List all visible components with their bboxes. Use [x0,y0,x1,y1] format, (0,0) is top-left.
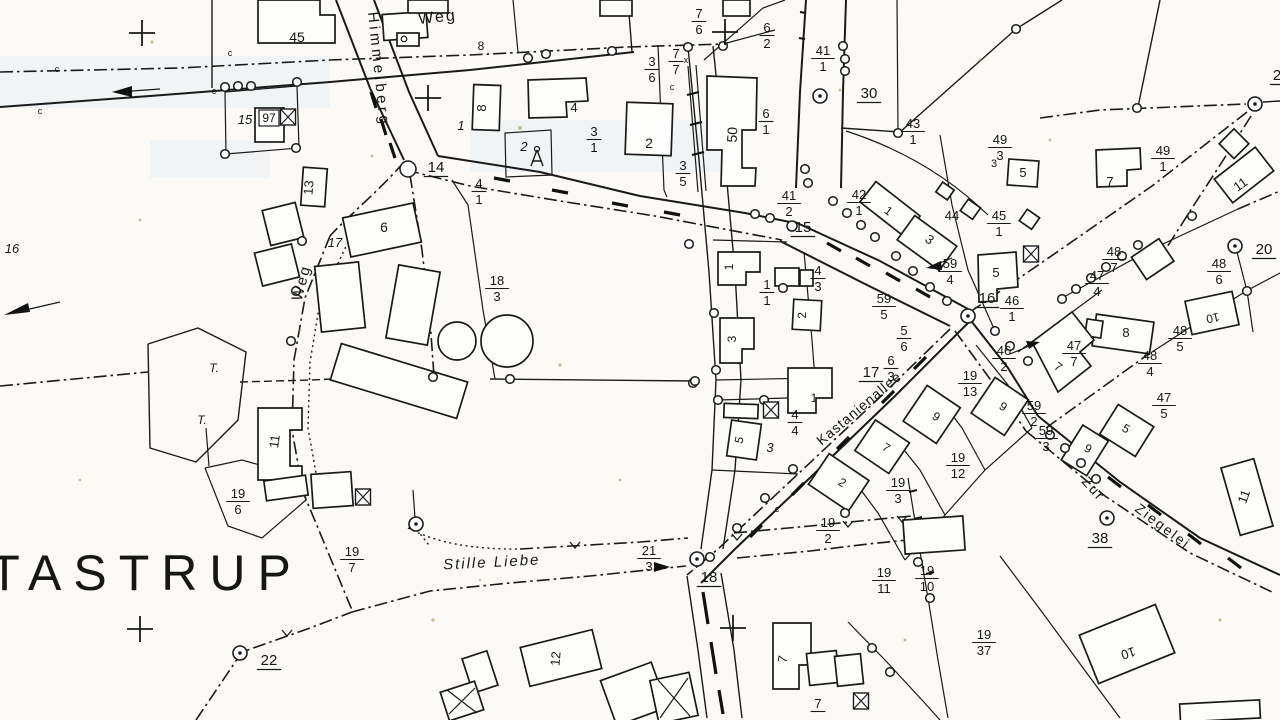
svg-text:43: 43 [906,116,920,131]
boundary-point-icon [1061,444,1070,453]
boundary-point-icon [926,594,935,603]
label-house: 5 [1019,165,1026,180]
svg-text:49: 49 [993,132,1007,147]
label-house: 2 [795,311,809,319]
svg-text:59: 59 [1027,398,1041,413]
label-parcel: 485 [1168,323,1192,354]
boundary-point-icon [221,83,230,92]
cadastral-map-canvas: TASTRUPWegHimmelbergWegStille LiebeKasta… [0,0,1280,720]
svg-text:3: 3 [590,124,597,139]
svg-text:18: 18 [701,569,718,586]
boundary-point-icon [524,54,533,63]
label-house: 50 [724,126,741,143]
label-parcel: 593 [1034,423,1058,454]
svg-text:45: 45 [992,208,1006,223]
label-block: 15 [791,219,815,237]
svg-text:c: c [212,86,217,96]
survey-point-icon [813,89,827,103]
svg-text:38: 38 [1092,530,1109,547]
label-parcel: 7 [811,696,826,712]
boundary-point-icon [714,396,723,405]
svg-text:1: 1 [763,293,770,308]
svg-text:47: 47 [1067,338,1081,353]
label-note: T. [209,361,219,375]
boundary-point-icon [706,553,715,562]
svg-text:59: 59 [943,256,957,271]
svg-text:19: 19 [977,627,991,642]
survey-point-icon [1228,239,1242,253]
svg-text:c: c [55,64,60,74]
label-parcel: 491 [1151,143,1175,174]
boundary-point-icon [1024,357,1033,366]
boundary-point-icon [751,210,760,219]
label-parcel: 1912 [946,450,970,481]
boundary-point-icon [909,267,918,276]
svg-text:50: 50 [724,126,741,143]
svg-text:1: 1 [762,122,769,137]
svg-text:19: 19 [920,563,934,578]
svg-text:2: 2 [824,531,831,546]
svg-text:19: 19 [345,544,359,559]
label-parcel: 192 [816,515,840,546]
svg-text:20: 20 [1256,241,1273,258]
svg-text:3: 3 [493,289,500,304]
svg-text:3: 3 [766,440,774,455]
label-house: 5 [992,265,999,280]
svg-text:4: 4 [570,100,577,115]
crossed-square-icon [281,109,296,125]
svg-text:2: 2 [1030,414,1037,429]
label-block: 30 [857,85,881,103]
boundary-point-icon [234,82,243,91]
svg-text:48: 48 [1173,323,1187,338]
boundary-point-icon [1058,295,1067,304]
svg-text:T.: T. [197,413,207,427]
svg-text:TASTRUP: TASTRUP [0,545,303,601]
svg-text:4: 4 [791,407,798,422]
label-house: 8 [474,104,489,111]
svg-text:22: 22 [261,652,278,669]
boundary-point-icon [608,47,617,56]
grid-cross-icon [127,616,153,642]
svg-text:7: 7 [1106,174,1113,189]
svg-text:11: 11 [266,434,283,449]
svg-text:97: 97 [262,111,276,125]
label-house: 1 [722,263,736,270]
label-parcel: 76 [692,6,707,37]
svg-text:44: 44 [945,208,959,223]
label-parcel: 412 [777,188,801,219]
boundary-point-icon [886,668,895,677]
svg-text:37: 37 [977,643,991,658]
svg-text:c: c [228,48,233,58]
label-house: 13 [300,180,316,196]
svg-text:42: 42 [852,187,866,202]
svg-text:59: 59 [1039,423,1053,438]
label-note: x [684,55,689,65]
label-house: 8 [1122,325,1129,340]
label-house: 8 [478,39,485,53]
crossed-square-icon [356,489,371,505]
label-parcel: 451 [987,208,1011,239]
svg-text:c: c [775,504,780,514]
svg-text:48: 48 [1212,256,1226,271]
svg-text:18: 18 [490,273,504,288]
svg-text:10: 10 [920,579,934,594]
label-parcel: 595 [872,291,896,322]
boundary-point-icon [829,197,838,206]
survey-point-icon [690,552,704,566]
boundary-point-icon [1243,287,1252,296]
svg-text:12: 12 [951,466,965,481]
svg-text:6: 6 [900,339,907,354]
svg-text:49: 49 [1156,143,1170,158]
label-street: Weg [417,7,457,28]
svg-text:1: 1 [1008,309,1015,324]
label-block: 18 [697,569,721,587]
svg-text:16: 16 [5,241,20,256]
label-house: 1 [811,391,818,405]
label-parcel: 431 [901,116,925,147]
svg-text:47: 47 [1090,268,1104,283]
boundary-point-icon [779,284,788,293]
boundary-point-icon [1188,212,1197,221]
svg-text:6: 6 [1215,272,1222,287]
svg-text:2: 2 [519,139,528,154]
svg-text:59: 59 [877,291,891,306]
label-house: 45 [289,29,305,45]
label-note: c [670,82,675,92]
boundary-point-icon [1134,241,1143,250]
svg-text:3: 3 [894,491,901,506]
svg-text:21: 21 [642,543,656,558]
boundary-point-icon [841,55,850,64]
svg-text:6: 6 [380,219,388,235]
boundary-point-icon [857,221,866,230]
label-block: 2 [1270,67,1280,85]
label-parcel: 411 [811,43,835,74]
svg-text:T.: T. [209,361,219,375]
label-house: 1 [457,118,464,133]
label-house: 16 [5,241,20,256]
label-house: 17 [328,235,343,250]
label-note: c [228,48,233,58]
label-parcel: 36 [645,54,660,85]
svg-text:1: 1 [590,140,597,155]
svg-text:4: 4 [475,176,482,191]
svg-text:1: 1 [722,263,736,270]
boundary-point-icon [801,165,810,174]
svg-text:1: 1 [855,203,862,218]
svg-text:7: 7 [672,46,679,61]
label-house: 12 [547,651,563,667]
svg-text:5: 5 [1160,406,1167,421]
boundary-point-icon [871,233,880,242]
label-house: 3 [725,335,739,342]
label-house: 15 [238,112,253,127]
survey-point-icon [1100,511,1114,525]
boundary-point-icon [868,644,877,653]
label-parcel: 197 [340,544,364,575]
svg-text:4: 4 [814,263,821,278]
boundary-point-icon [712,366,721,375]
label-parcel: 77 [669,46,684,77]
boundary-point-icon [926,283,935,292]
svg-text:7: 7 [814,696,821,711]
label-parcel: 474 [1085,268,1109,299]
scanned-cadastral-map: TASTRUPWegHimmelbergWegStille LiebeKasta… [0,0,1280,720]
svg-text:2: 2 [763,36,770,51]
svg-text:12: 12 [547,651,563,667]
svg-text:1: 1 [475,192,482,207]
boundary-point-icon [843,209,852,218]
label-parcel: 475 [1152,390,1176,421]
svg-text:1: 1 [1159,159,1166,174]
boundary-point-icon [766,214,775,223]
svg-text:30: 30 [861,85,878,102]
label-house: 2 [645,135,653,151]
boundary-point-icon [685,240,694,249]
label-parcel: 486 [1207,256,1231,287]
label-block: 14 [424,159,448,177]
boundary-point-icon [691,377,700,386]
boundary-point-icon [943,297,952,306]
svg-text:8: 8 [474,104,489,111]
label-house: 11 [266,434,283,449]
label-parcel: 1913 [958,368,982,399]
label-parcel: 41 [472,176,487,207]
svg-text:19: 19 [821,515,835,530]
svg-text:6: 6 [234,502,241,517]
svg-text:45: 45 [289,29,305,45]
boundary-point-icon [1072,285,1081,294]
label-street: Stille Liebe [443,551,541,573]
svg-text:19: 19 [231,486,245,501]
label-parcel: 56 [897,323,912,354]
svg-text:4: 4 [946,272,953,287]
svg-text:4: 4 [791,423,798,438]
label-place: TASTRUP [0,545,303,601]
svg-text:6: 6 [695,22,702,37]
svg-text:15: 15 [795,219,812,236]
svg-text:3: 3 [991,158,997,170]
label-block: 17 [859,364,883,382]
svg-text:19: 19 [877,565,891,580]
svg-text:6: 6 [763,20,770,35]
svg-text:6: 6 [887,353,894,368]
label-parcel: 461 [1000,293,1024,324]
boundary-point-icon [293,78,302,87]
label-house: 4 [570,100,577,115]
svg-text:6: 6 [762,106,769,121]
svg-text:3: 3 [648,54,655,69]
boundary-point-icon [684,43,693,52]
svg-text:1: 1 [763,277,770,292]
survey-point-icon [961,309,975,323]
svg-text:3: 3 [725,335,739,342]
svg-text:3: 3 [996,148,1003,163]
svg-text:1: 1 [819,59,826,74]
boundary-point-icon [429,373,438,382]
boundary-point-icon [719,42,728,51]
label-parcel: 1911 [872,565,896,596]
svg-text:14: 14 [428,159,445,176]
boundary-point-icon [247,82,256,91]
label-parcel: 61 [759,106,774,137]
boundary-point-icon [841,509,850,518]
svg-text:17: 17 [863,364,880,381]
label-house: 44 [945,208,959,223]
boundary-point-icon [789,465,798,474]
svg-text:c: c [38,106,43,116]
boundary-point-icon [1077,459,1086,468]
svg-text:5: 5 [900,323,907,338]
boundary-point-icon [841,67,850,76]
label-note: c [212,86,217,96]
boundary-point-icon [991,327,1000,336]
survey-point-icon [409,517,423,531]
label-block: 20 [1252,241,1276,259]
svg-text:3: 3 [887,369,894,384]
boundary-point-icon [1012,25,1021,34]
label-parcel: 193 [886,475,910,506]
svg-text:47: 47 [1157,390,1171,405]
survey-point-icon [1248,97,1262,111]
svg-text:1: 1 [909,132,916,147]
label-parcel: 1937 [972,627,996,658]
label-parcel: 43 [811,263,826,294]
boundary-point-icon [839,42,848,51]
svg-text:1: 1 [995,224,1002,239]
svg-text:7: 7 [1110,260,1117,275]
svg-text:Stille Liebe: Stille Liebe [443,551,541,573]
svg-text:11: 11 [877,581,891,596]
svg-text:2: 2 [795,311,809,319]
label-house: 2 [519,139,528,154]
svg-text:19: 19 [891,475,905,490]
svg-text:5: 5 [1176,339,1183,354]
svg-text:46: 46 [997,343,1011,358]
label-parcel: 183 [485,273,509,304]
boundary-point-icon [894,129,903,138]
svg-text:3: 3 [1042,439,1049,454]
boundary-point-icon [221,150,230,159]
label-house: 3 [766,440,774,455]
svg-text:1: 1 [457,118,464,133]
boundary-point-icon [298,237,307,246]
svg-text:48: 48 [1107,244,1121,259]
label-parcel: 1910 [915,563,939,594]
svg-text:c: c [670,82,675,92]
crossed-square-icon [764,402,779,418]
svg-text:13: 13 [963,384,977,399]
svg-text:7: 7 [348,560,355,575]
svg-text:1: 1 [811,391,818,405]
crossed-square-icon [854,693,869,709]
road-hatch-marks [371,12,1241,568]
grid-cross-icon [720,615,746,641]
boundary-point-icon [400,161,416,177]
svg-text:2: 2 [785,204,792,219]
svg-text:6: 6 [648,70,655,85]
svg-text:15: 15 [238,112,253,127]
svg-text:3: 3 [814,279,821,294]
svg-text:48: 48 [1143,348,1157,363]
svg-text:2: 2 [645,135,653,151]
boundary-point-icon [1133,104,1142,113]
label-house: 6 [380,219,388,235]
svg-text:46: 46 [1005,293,1019,308]
svg-text:2: 2 [1000,359,1007,374]
svg-text:8: 8 [478,39,485,53]
label-note: T. [197,413,207,427]
svg-text:19: 19 [963,368,977,383]
label-note: c [38,106,43,116]
boundary-point-icon [292,144,301,153]
svg-text:4: 4 [1146,364,1153,379]
svg-text:5: 5 [1019,165,1026,180]
svg-text:19: 19 [951,450,965,465]
boundary-point-icon [287,337,296,346]
svg-text:7: 7 [672,62,679,77]
label-note: c [775,504,780,514]
svg-text:41: 41 [816,43,830,58]
svg-text:5: 5 [992,265,999,280]
svg-text:7: 7 [1070,354,1077,369]
label-note: c [55,64,60,74]
boundary-point-icon [710,309,719,318]
boundary-point-icon [506,375,515,384]
grid-cross-icon [415,85,441,111]
svg-text:41: 41 [782,188,796,203]
svg-text:x: x [684,55,689,65]
label-parcel: 62 [760,20,775,51]
svg-text:3: 3 [679,158,686,173]
svg-text:8: 8 [1122,325,1129,340]
boundary-point-icon [892,252,901,261]
boundary-point-icon [733,524,742,533]
svg-text:16: 16 [979,290,996,307]
svg-text:5: 5 [679,174,686,189]
label-house: 7 [1106,174,1113,189]
svg-text:5: 5 [880,307,887,322]
svg-text:2: 2 [1273,67,1280,84]
svg-text:17: 17 [328,235,343,250]
svg-text:7: 7 [695,6,702,21]
label-parcel: 196 [226,486,250,517]
svg-text:Weg: Weg [417,7,457,28]
boundary-point-icon [804,179,813,188]
boundary-point-icon [542,50,551,59]
label-parcel: 11 [760,277,775,308]
survey-point-icon [233,646,247,660]
boundary-point-icon [761,494,770,503]
label-house: 3 [991,158,997,170]
label-block: 22 [257,652,281,670]
label-block: 38 [1088,530,1112,548]
svg-text:3: 3 [645,559,652,574]
crossed-square-icon [1024,246,1039,262]
svg-text:4: 4 [1093,284,1100,299]
svg-text:13: 13 [300,180,316,196]
